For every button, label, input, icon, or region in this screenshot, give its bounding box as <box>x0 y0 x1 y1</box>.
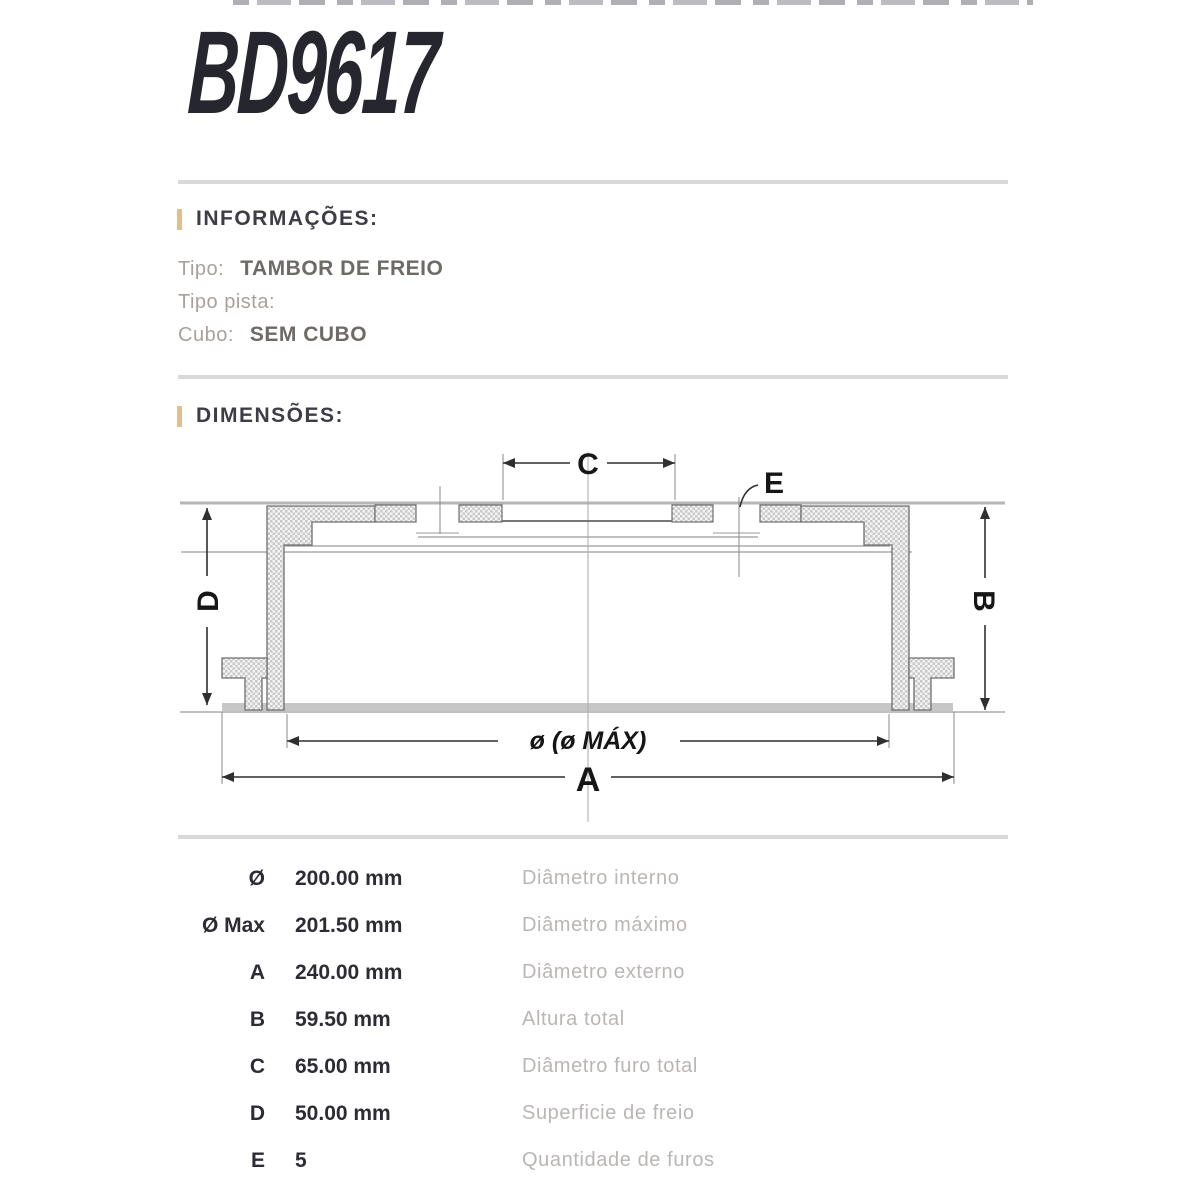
dim-value: 5 <box>265 1149 522 1173</box>
info-row: Tipo:TAMBOR DE FREIO <box>178 252 443 285</box>
flange-segment <box>459 505 502 522</box>
table-row: E 5 Quantidade de furos <box>175 1137 1055 1184</box>
divider <box>178 835 1008 839</box>
page-title: BD9617 <box>186 14 440 132</box>
table-row: Ø 200.00 mm Diâmetro interno <box>175 855 1055 902</box>
table-row: Ø Max 201.50 mm Diâmetro máximo <box>175 902 1055 949</box>
info-rows: Tipo:TAMBOR DE FREIO Tipo pista: Cubo:SE… <box>178 252 443 351</box>
right-foot-section <box>909 658 954 710</box>
dim-symbol: A <box>175 961 265 985</box>
brake-drum-cross-section-diagram: C E D B ø (ø MÁX) A <box>170 435 1015 825</box>
dim-symbol: Ø <box>175 867 265 891</box>
info-value: SEM CUBO <box>250 323 367 346</box>
flange-segment <box>672 505 713 522</box>
dim-description: Diâmetro externo <box>522 961 1055 984</box>
info-label: Tipo pista: <box>178 291 275 313</box>
dim-description: Quantidade de furos <box>522 1149 1055 1172</box>
dim-symbol: C <box>175 1055 265 1079</box>
info-value: TAMBOR DE FREIO <box>240 257 443 280</box>
dim-label-c: C <box>577 448 599 481</box>
dim-symbol: B <box>175 1008 265 1032</box>
info-heading-label: INFORMAÇÕES: <box>196 207 379 231</box>
divider <box>178 375 1008 379</box>
table-row: A 240.00 mm Diâmetro externo <box>175 949 1055 996</box>
dimensions-section-heading: DIMENSÕES: <box>177 404 344 428</box>
table-row: C 65.00 mm Diâmetro furo total <box>175 1043 1055 1090</box>
dim-label-a: A <box>576 761 601 799</box>
info-row: Tipo pista: <box>178 285 443 318</box>
dimensions-heading-label: DIMENSÕES: <box>196 404 344 428</box>
info-section-heading: INFORMAÇÕES: <box>177 207 379 231</box>
dim-value: 59.50 mm <box>265 1008 522 1032</box>
cropped-top-remnant <box>233 0 1033 5</box>
dim-description: Diâmetro interno <box>522 867 1055 890</box>
dim-value: 65.00 mm <box>265 1055 522 1079</box>
dimension-table: Ø 200.00 mm Diâmetro interno Ø Max 201.5… <box>175 855 1055 1184</box>
info-row: Cubo:SEM CUBO <box>178 318 443 351</box>
dim-symbol: D <box>175 1102 265 1126</box>
dim-description: Altura total <box>522 1008 1055 1031</box>
info-label: Tipo: <box>178 258 224 280</box>
dim-label-b: B <box>967 590 1000 612</box>
dim-value: 200.00 mm <box>265 867 522 891</box>
dim-value: 50.00 mm <box>265 1102 522 1126</box>
flange-segment <box>375 505 416 522</box>
info-label: Cubo: <box>178 324 234 346</box>
dim-value: 240.00 mm <box>265 961 522 985</box>
flange-segment <box>760 505 801 522</box>
dim-label-diameter: ø (ø MÁX) <box>530 726 647 755</box>
dim-description: Diâmetro furo total <box>522 1055 1055 1078</box>
table-row: B 59.50 mm Altura total <box>175 996 1055 1043</box>
dim-value: 201.50 mm <box>265 914 522 938</box>
dim-label-d: D <box>192 590 225 612</box>
left-foot-section <box>222 658 267 710</box>
table-row: D 50.00 mm Superficie de freio <box>175 1090 1055 1137</box>
right-wall-section <box>801 506 909 710</box>
divider <box>178 180 1008 184</box>
product-spec-page: { "title": { "part_number": "BD9617" }, … <box>0 0 1200 1200</box>
dim-description: Superficie de freio <box>522 1102 1055 1125</box>
left-wall-section <box>267 506 375 710</box>
accent-bar-icon <box>177 406 182 427</box>
dim-symbol: Ø Max <box>175 914 265 938</box>
dim-label-e: E <box>764 467 784 500</box>
accent-bar-icon <box>177 209 182 230</box>
dim-description: Diâmetro máximo <box>522 914 1055 937</box>
dim-symbol: E <box>175 1149 265 1173</box>
